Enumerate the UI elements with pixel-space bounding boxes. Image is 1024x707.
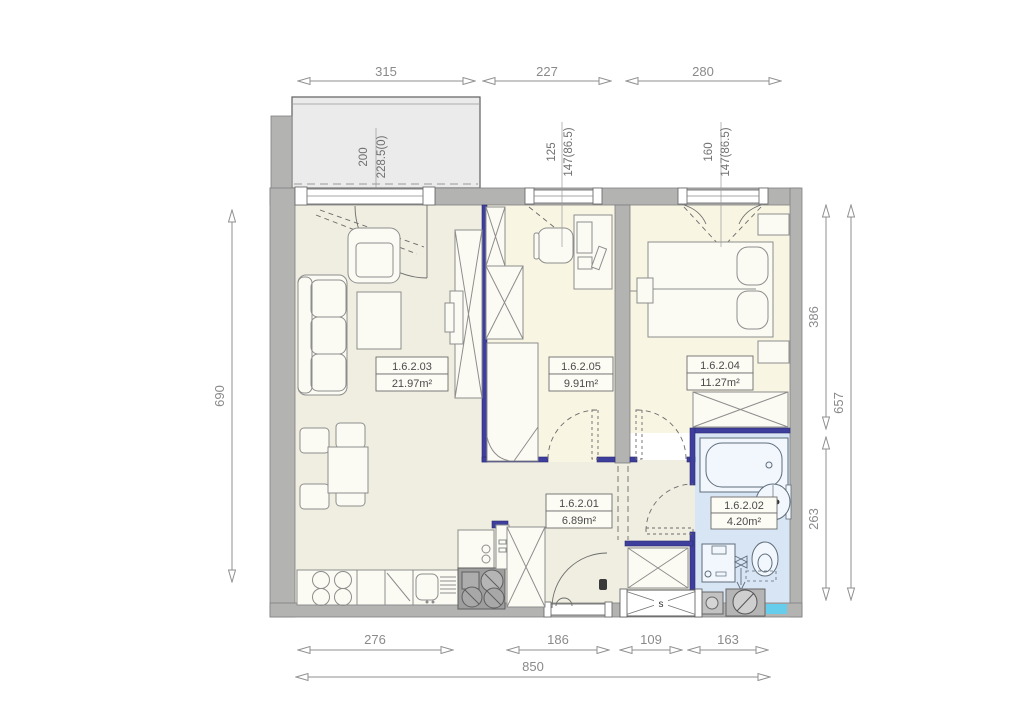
balcony-door-window xyxy=(295,187,435,205)
shaft-label: s xyxy=(659,599,664,610)
nightstand-icon xyxy=(758,214,789,235)
dim-right-bottom: 263 xyxy=(806,508,821,530)
stove-unit-icon xyxy=(458,568,505,609)
dim-bottom-2: 186 xyxy=(547,632,569,647)
wall-right xyxy=(790,188,802,617)
room-area: 21.97m² xyxy=(392,378,433,390)
nightstand-icon xyxy=(758,341,789,363)
room-id: 1.6.2.03 xyxy=(392,361,432,373)
room-area: 11.27m² xyxy=(700,377,740,389)
chair-icon xyxy=(300,484,329,509)
washing-machine-icon xyxy=(702,544,735,582)
drain-icon xyxy=(726,589,765,616)
floor-plan: s 1.6.2.03 21.97m² 1.6.2.05 9.91m² xyxy=(0,0,1024,707)
sofa-icon xyxy=(298,275,347,395)
bedroom-window-width: 160 xyxy=(703,142,715,161)
room-area: 9.91m² xyxy=(564,378,599,390)
cyan-marker xyxy=(766,604,787,614)
vent-icon xyxy=(702,592,723,614)
radiator-icon xyxy=(637,278,653,303)
chair-icon xyxy=(300,428,329,453)
balcony-door-height: 228.5(0) xyxy=(376,135,388,178)
room-id: 1.6.2.02 xyxy=(724,500,764,512)
dining-table-icon xyxy=(328,447,368,493)
balcony-door-width: 200 xyxy=(358,147,370,166)
door-handle-icon xyxy=(599,579,607,590)
dim-bottom-3: 109 xyxy=(640,632,662,647)
dim-bottom-1: 276 xyxy=(364,632,386,647)
study-window xyxy=(525,188,602,204)
room-id: 1.6.2.04 xyxy=(700,360,740,372)
dim-right-top: 386 xyxy=(806,306,821,328)
room-area: 6.89m² xyxy=(562,515,597,527)
shaft: s xyxy=(620,589,702,617)
dim-bottom-4: 163 xyxy=(717,632,739,647)
double-bed-icon xyxy=(648,242,773,337)
monitor-icon xyxy=(577,222,592,253)
dim-top-1: 315 xyxy=(375,64,397,79)
room-id: 1.6.2.05 xyxy=(561,361,601,373)
dim-top-3: 280 xyxy=(692,64,714,79)
wall-left-upper xyxy=(271,116,292,190)
bedroom-window-height: 147(86.5) xyxy=(720,127,732,176)
dim-left: 690 xyxy=(212,385,227,407)
room-label-hall: 1.6.2.01 6.89m² xyxy=(546,494,612,528)
chair-icon xyxy=(336,423,365,448)
room-id: 1.6.2.01 xyxy=(559,498,599,510)
dim-right-total: 657 xyxy=(831,392,846,414)
desk-icon xyxy=(574,215,612,289)
wardrobe-icon xyxy=(693,392,788,427)
pillow-icon xyxy=(737,247,768,285)
kitchen-peninsula xyxy=(458,530,494,568)
coffee-table-icon xyxy=(357,292,401,349)
windows-group xyxy=(295,187,768,205)
wardrobe-icon xyxy=(486,266,523,339)
single-bed-icon xyxy=(487,343,538,461)
room-area: 4.20m² xyxy=(727,516,762,528)
entrance-threshold xyxy=(548,604,607,615)
wardrobe-icon xyxy=(486,207,505,266)
room-label-bath: 1.6.2.02 4.20m² xyxy=(711,497,777,529)
dim-top-2: 227 xyxy=(536,64,558,79)
room-label-study: 1.6.2.05 9.91m² xyxy=(549,357,613,391)
armchair-icon xyxy=(348,228,400,283)
study-window-height: 147(86.5) xyxy=(563,127,575,176)
dim-bottom-total: 850 xyxy=(522,659,544,674)
pillow-icon xyxy=(737,291,768,329)
wall-between-bedrooms xyxy=(615,205,630,463)
room-label-bedroom: 1.6.2.04 11.27m² xyxy=(687,356,753,390)
bedroom-window xyxy=(678,188,768,204)
tall-cabinet-icon xyxy=(507,527,545,607)
desk-chair-icon xyxy=(534,228,573,263)
room-label-living: 1.6.2.03 21.97m² xyxy=(376,357,448,391)
study-window-width: 125 xyxy=(546,142,558,161)
hall-wardrobe-icon xyxy=(628,548,688,588)
wall-left xyxy=(270,188,295,617)
